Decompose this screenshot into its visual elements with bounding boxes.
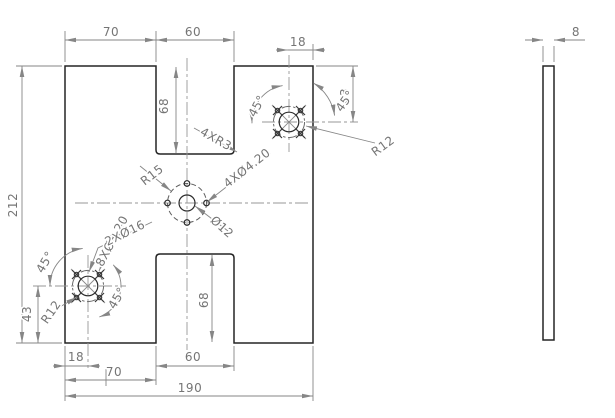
- callout-r12-bl: R12: [38, 298, 64, 327]
- callout-d12: Ø12: [208, 213, 237, 241]
- callout-45-tr-left: 45°: [245, 93, 268, 120]
- dim-tr-18: 18: [290, 35, 306, 49]
- dim-bottom-68: 68: [197, 292, 211, 308]
- dim-bottom-60: 60: [185, 350, 201, 364]
- plate-outline: [65, 66, 313, 343]
- callout-4xr3: 4XR3: [198, 125, 234, 154]
- engineering-drawing: 70 60 18 43 68 212 43 18 60 70 190 68 8 …: [0, 0, 615, 418]
- callout-4x-d420: 4XØ4.20: [221, 145, 273, 190]
- side-view-outline: [543, 66, 554, 340]
- callout-45-bl-lower: 45°: [105, 285, 129, 312]
- dim-190: 190: [178, 381, 202, 395]
- dim-thickness-8: 8: [572, 25, 580, 39]
- dim-212: 212: [6, 193, 20, 217]
- dim-bottom-70: 70: [106, 365, 122, 379]
- extension-lines: [16, 31, 554, 401]
- centerlines: [33, 55, 358, 368]
- diagonal-centerlines: [71, 105, 306, 303]
- drawing-canvas: 70 60 18 43 68 212 43 18 60 70 190 68 8 …: [0, 0, 615, 418]
- leader-r12-tr: [306, 126, 375, 143]
- dim-bottom-18: 18: [68, 350, 84, 364]
- callout-45-tr-right: 45°: [333, 88, 358, 115]
- callout-r12-tr: R12: [369, 133, 398, 159]
- dim-top-70: 70: [103, 25, 119, 39]
- dim-top-68: 68: [157, 98, 171, 114]
- arc-bl-upper-45: [50, 248, 83, 286]
- dim-bl-43: 43: [20, 306, 34, 322]
- dim-top-60: 60: [185, 25, 201, 39]
- arc-tr-right-45: [313, 83, 334, 116]
